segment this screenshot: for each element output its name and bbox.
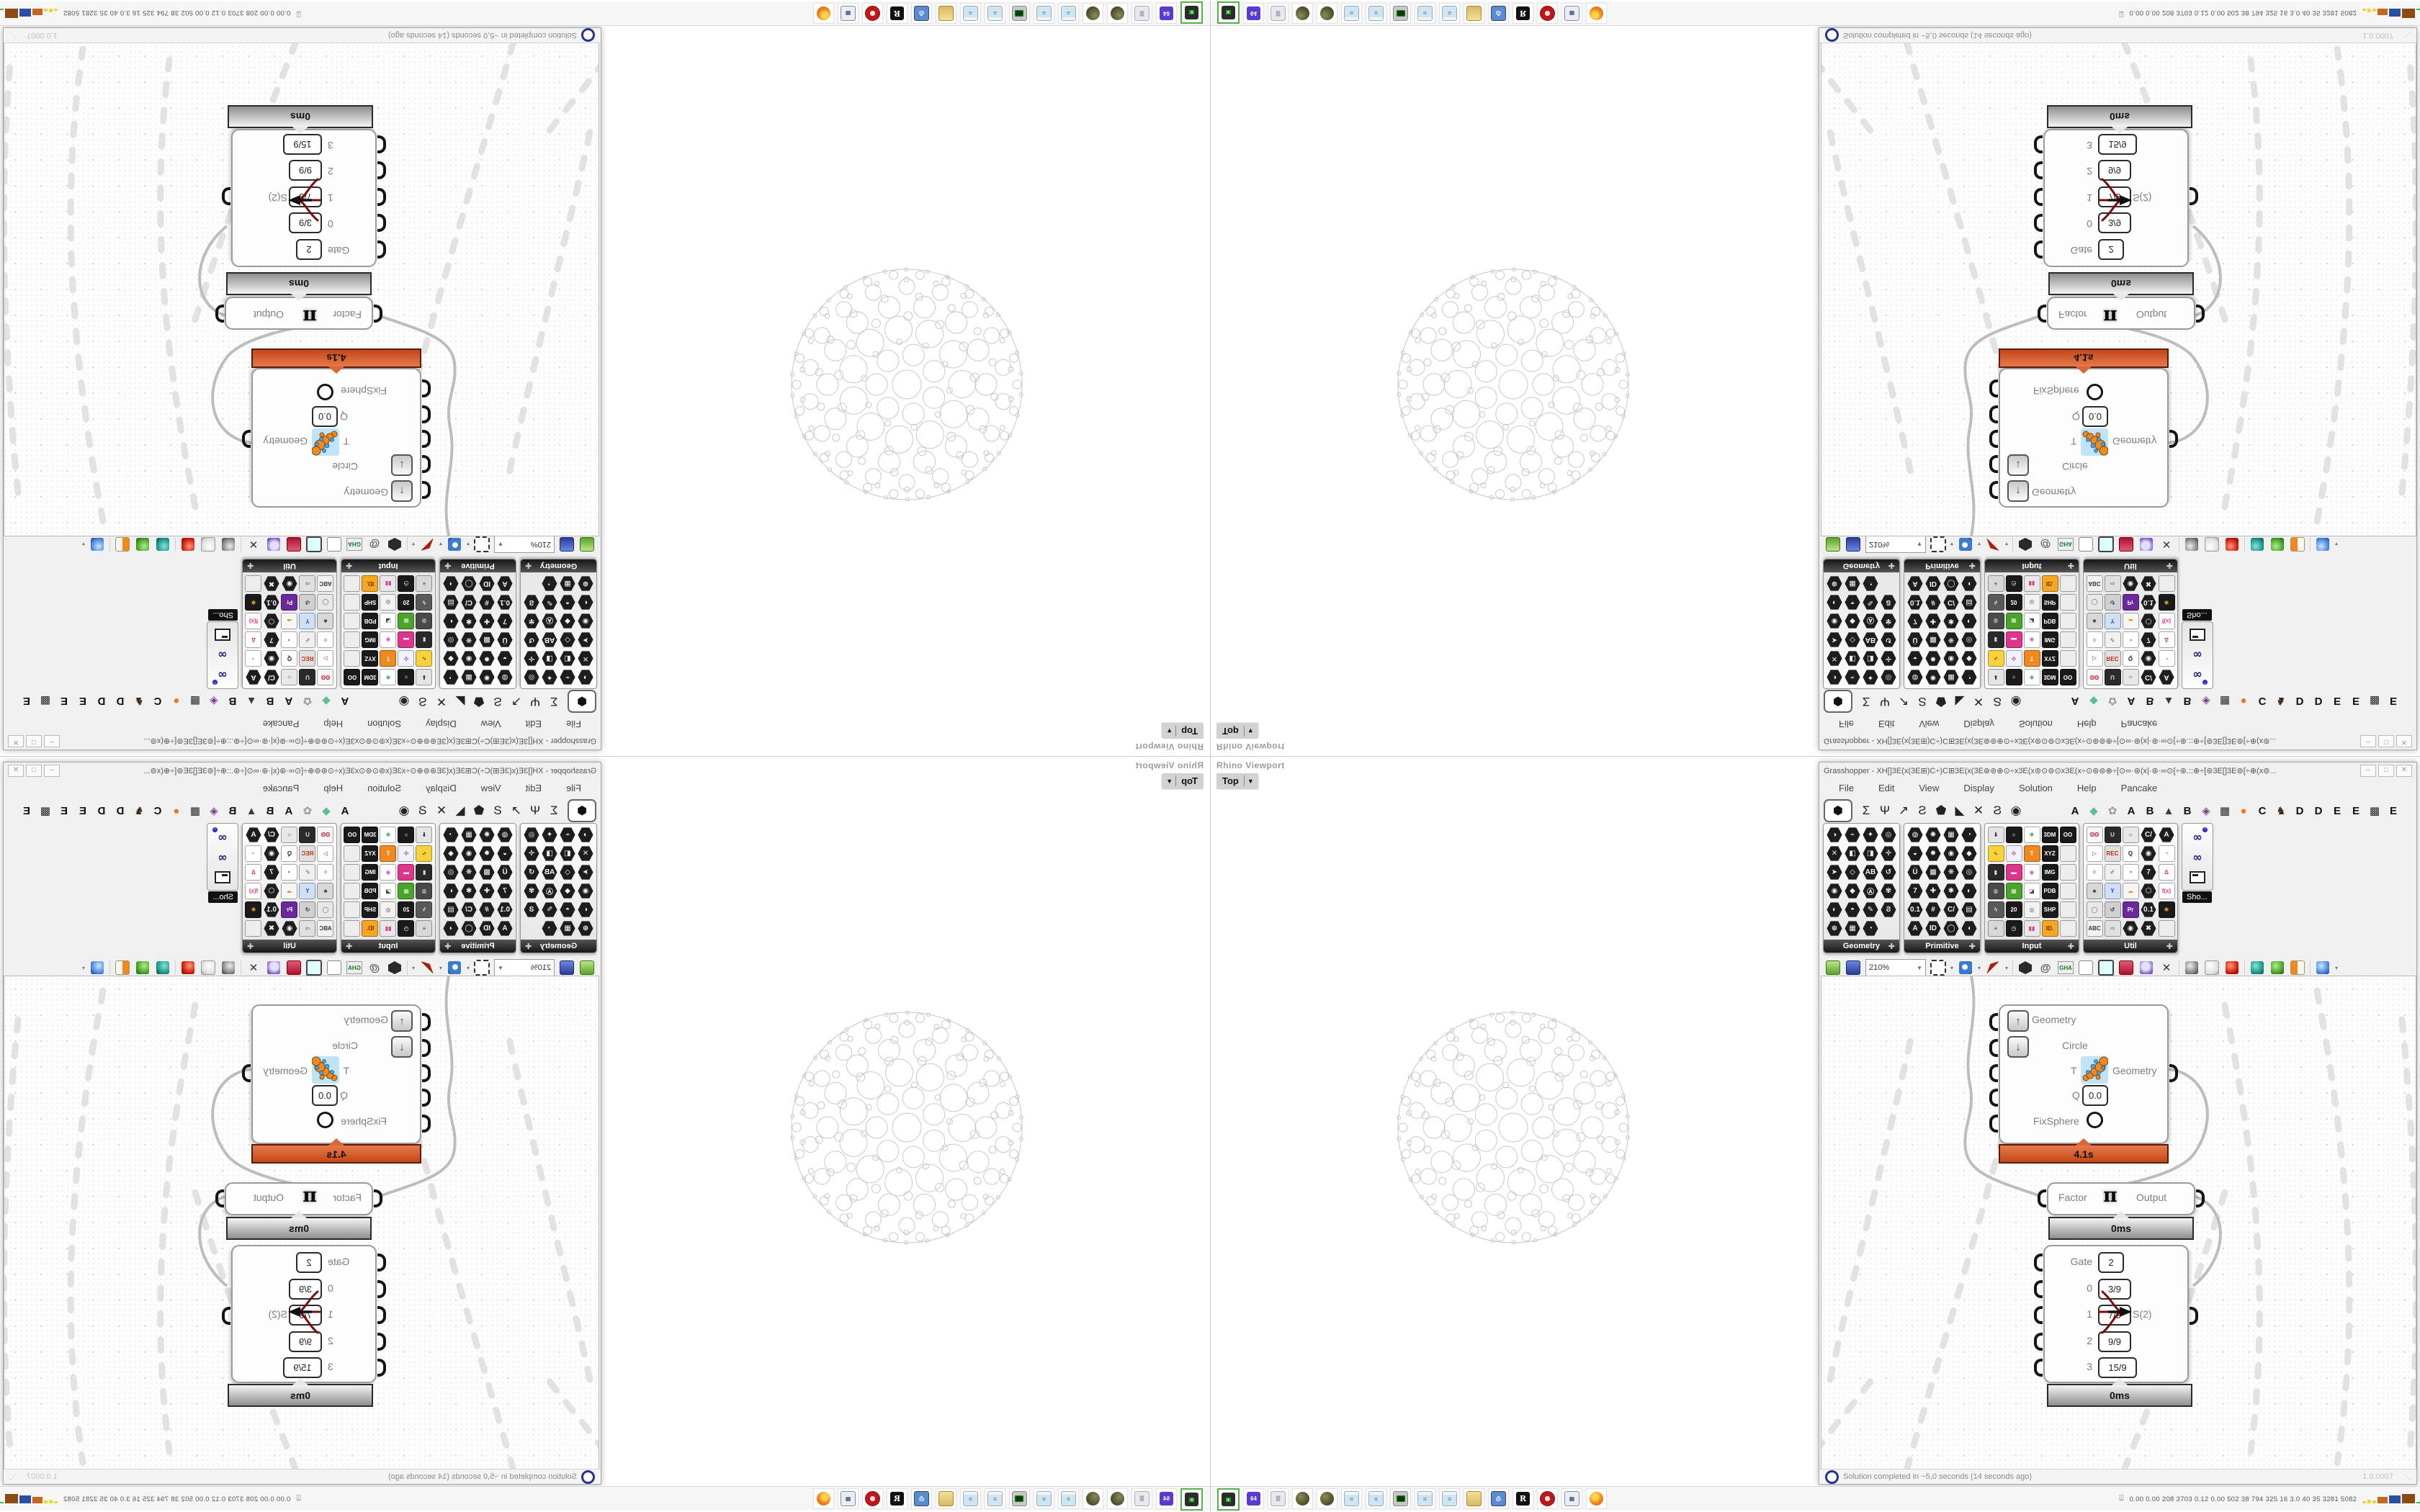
palette-cell[interactable]: ▬ — [398, 863, 415, 881]
palette-cell[interactable]: ✱ — [1942, 612, 1960, 630]
palette-cell[interactable]: ◓ — [559, 901, 576, 919]
palette-cell[interactable]: PDB — [2041, 882, 2058, 900]
palette-cell[interactable]: ▮▮ — [380, 919, 397, 937]
palette-cell[interactable]: ✚ — [1924, 882, 1942, 900]
tab-icon-4[interactable]: ⬟ — [470, 804, 488, 818]
chevron-down-icon[interactable]: ▼ — [498, 541, 503, 548]
tab-icon-5[interactable]: ◣ — [1950, 804, 1969, 818]
palette-cell[interactable]: Ⓐ — [1862, 882, 1879, 900]
palette-cell[interactable]: ✎ — [1862, 593, 1879, 611]
menu-edit[interactable]: Edit — [514, 781, 554, 797]
palette-cell[interactable]: ϟ — [1987, 593, 2004, 611]
open-file-icon[interactable] — [1825, 536, 1841, 552]
tab-icon-1[interactable]: Ψ — [526, 694, 544, 708]
palette-cell[interactable]: REC — [2104, 845, 2121, 863]
preview-off-icon[interactable] — [220, 536, 236, 552]
palette-cell[interactable]: 0.1 — [2140, 901, 2157, 919]
tab-letter-15[interactable]: E — [2347, 805, 2365, 817]
tab-letter-0[interactable]: A — [2066, 696, 2084, 708]
palette-cell[interactable]: 3DM — [2041, 668, 2058, 686]
zoom-level-select[interactable]: 210%▼ — [494, 959, 555, 976]
palette-cell[interactable]: ✣ — [2005, 845, 2022, 863]
idea-bulb-icon[interactable] — [266, 536, 282, 552]
close-button[interactable]: ✕ — [2396, 765, 2412, 777]
palette-cell[interactable]: ✺ — [478, 668, 496, 686]
palette-cell[interactable]: ◎ — [442, 863, 460, 881]
dropdown-caret[interactable]: ▾ — [1978, 965, 1981, 971]
palette-cell[interactable]: ☁ — [281, 882, 298, 900]
palette-cell[interactable]: # — [1924, 593, 1942, 611]
palette-cell[interactable]: ✖ — [2140, 575, 2157, 593]
palette-cell[interactable]: ◓ — [1844, 593, 1861, 611]
preview-eye-icon[interactable] — [1958, 536, 1973, 552]
palette-cell[interactable]: ▦ — [2005, 612, 2022, 630]
tab-letter-11[interactable]: ♞ — [130, 804, 148, 817]
gate-input-connector-3[interactable] — [2034, 1359, 2043, 1377]
save-file-icon[interactable] — [1845, 960, 1861, 976]
palette-cell[interactable]: ⊕ — [1826, 919, 1843, 937]
palette-cell[interactable]: ◔ — [2158, 649, 2175, 667]
palette-cell[interactable]: ✺ — [478, 826, 496, 844]
gate-input-connector-1[interactable] — [2034, 188, 2043, 206]
tab-letter-14[interactable]: E — [73, 805, 92, 817]
expand-icon[interactable]: ✚ — [2068, 942, 2074, 951]
fixsphere-toggle[interactable] — [317, 384, 333, 400]
menu-pancake[interactable]: Pancake — [2109, 781, 2170, 797]
idea-bulb-icon[interactable] — [2138, 960, 2154, 976]
tab-letter-0[interactable]: A — [2066, 805, 2084, 817]
grasshopper-titlebar[interactable]: Grasshopper - XH[]3E(x(3E⊞)C÷)C⊞3E(x(3E⊛… — [1819, 734, 2416, 750]
dropdown-caret[interactable]: ▾ — [439, 965, 442, 971]
input-fixsphere-connector[interactable] — [422, 1115, 431, 1133]
palette-cell[interactable]: PDB — [362, 612, 379, 630]
palette-cell[interactable]: ⬡ — [263, 882, 280, 900]
palette-cell[interactable]: ◉ — [2023, 863, 2040, 881]
chevron-down-icon[interactable]: ▼ — [1247, 728, 1254, 735]
ball-orange-icon[interactable] — [2290, 960, 2305, 976]
tab-letter-15[interactable]: E — [55, 805, 73, 817]
menu-solution[interactable]: Solution — [355, 715, 413, 731]
palette-cell[interactable]: AB — [541, 863, 558, 881]
tab-icon-8[interactable]: ◉ — [2007, 694, 2025, 708]
gate-input-connector-2[interactable] — [377, 162, 386, 180]
palette-cell[interactable]: ✾ — [1880, 612, 1897, 630]
maximize-button[interactable]: □ — [2378, 736, 2394, 748]
palette-cell[interactable]: Ü — [1906, 863, 1924, 881]
taskbar-scroll-doc[interactable]: ≣ — [1131, 1488, 1152, 1509]
sort-down-button[interactable]: ↓ — [391, 1036, 413, 1058]
palette-cell[interactable]: A — [496, 575, 514, 593]
palette-cell[interactable]: Ⓐ — [541, 612, 558, 630]
pin-green-icon[interactable] — [135, 536, 151, 552]
tab-icon-4[interactable]: ⬟ — [470, 694, 488, 708]
palette-cell[interactable]: ▤ — [442, 901, 460, 919]
palette-cell[interactable]: ◖ — [442, 919, 460, 937]
menu-edit[interactable]: Edit — [514, 715, 554, 731]
input-circle-connector[interactable] — [422, 1039, 431, 1057]
palette-cell[interactable]: ✱ — [460, 612, 478, 630]
gh-canvas[interactable]: ↑ Geometry ↓ Circle T — [4, 976, 599, 1471]
dropdown-caret[interactable]: ▾ — [82, 965, 85, 971]
palette-cell[interactable]: C/ — [2140, 668, 2157, 686]
menu-edit[interactable]: Edit — [1866, 715, 1906, 731]
tab-letter-8[interactable]: ▦ — [2215, 695, 2234, 708]
dropdown-caret[interactable]: ▾ — [439, 541, 442, 548]
gift-box-icon[interactable] — [286, 536, 302, 552]
palette-cell[interactable]: AB — [1862, 863, 1879, 881]
palette-cell[interactable]: ϟ — [1987, 901, 2004, 919]
palette-cell[interactable]: ✹ — [1924, 845, 1942, 863]
palette-cell[interactable]: T — [380, 845, 397, 863]
taskbar-firefox[interactable] — [813, 3, 834, 24]
palette-cell[interactable]: ◍ — [496, 826, 514, 844]
palette-cell[interactable]: Q — [281, 845, 298, 863]
tab-icon-7[interactable]: Ϩ — [413, 804, 432, 818]
taskbar-notepad-2[interactable]: ≡ — [1034, 3, 1054, 24]
palette-cell[interactable] — [2059, 612, 2076, 630]
palette-cell[interactable]: Q — [281, 649, 298, 667]
taskbar-notepad-4[interactable]: ≡ — [1439, 1488, 1460, 1509]
palette-cell[interactable]: ✱ — [2158, 901, 2175, 919]
expand-icon[interactable]: ✚ — [525, 562, 532, 571]
taskbar-login-monitor[interactable]: ⎙ — [911, 1488, 932, 1509]
taskbar-red-gear[interactable] — [1537, 3, 1558, 24]
palette-name-primitive[interactable]: Primitive✚ — [1904, 559, 1980, 572]
palette-cell[interactable]: IMG — [2041, 631, 2058, 649]
palette-cell[interactable]: ❖ — [2023, 826, 2040, 844]
taskbar-rhino[interactable]: R — [887, 3, 907, 24]
palette-cell[interactable]: ◯ — [2086, 901, 2103, 919]
tab-letter-13[interactable]: D — [2309, 805, 2328, 817]
palette-cell[interactable]: ID — [478, 919, 496, 937]
taskbar-scroll-doc[interactable]: ≣ — [1131, 3, 1152, 24]
tab-icon-0[interactable]: Σ — [544, 804, 563, 818]
grasshopper-titlebar[interactable]: Grasshopper - XH[]3E(x(3E⊞)C÷)C⊞3E(x(3E⊛… — [4, 734, 601, 750]
palette-cell[interactable]: A — [1906, 919, 1924, 937]
palette-cell[interactable]: ✐ — [299, 631, 316, 649]
gate-input-connector-gate[interactable] — [2034, 1254, 2043, 1272]
palette-cell[interactable]: ◉ — [1826, 612, 1843, 630]
palette-cell[interactable]: ≡ — [416, 575, 433, 593]
tab-letter-2[interactable]: ✿ — [2103, 695, 2122, 708]
palette-cell[interactable]: ◎ — [523, 668, 540, 686]
palette-cell[interactable] — [344, 612, 361, 630]
palette-cell[interactable]: ◍ — [416, 612, 433, 630]
gate-row-value-2[interactable]: 9/9 — [2098, 1331, 2131, 1352]
tab-letter-9[interactable]: ● — [2234, 805, 2253, 817]
factor-component[interactable]: Factor π Output — [2047, 297, 2195, 330]
palette-cell[interactable]: Ϩ — [523, 593, 540, 611]
taskbar-notepad-3[interactable]: ≡ — [985, 1488, 1005, 1509]
gha-assembly-icon[interactable]: GHA — [346, 960, 362, 976]
palette-cell[interactable] — [344, 649, 361, 667]
palette-cell[interactable]: OO — [2059, 668, 2076, 686]
input-t-connector[interactable] — [422, 1064, 431, 1082]
palette-cell[interactable]: ID. — [2041, 919, 2058, 937]
tab-letter-12[interactable]: D — [111, 696, 130, 708]
palette-cell[interactable]: ✖ — [263, 575, 280, 593]
menu-help[interactable]: Help — [311, 715, 355, 731]
expand-icon[interactable]: ✚ — [346, 942, 352, 951]
taskbar-floppy-64[interactable]: 64 — [1243, 3, 1264, 24]
preview-shaded-icon[interactable] — [180, 960, 196, 976]
tab-letter-2[interactable]: ✿ — [298, 804, 317, 817]
input-q-connector[interactable] — [1989, 405, 1998, 423]
palette-cell[interactable]: A — [245, 668, 262, 686]
sketch-quill-icon[interactable] — [1985, 536, 2001, 552]
fixsphere-component[interactable]: ↑ Geometry ↓ Circle T — [251, 368, 421, 508]
palette-cell[interactable]: ◆ — [1844, 612, 1861, 630]
palette-cell[interactable]: 7 — [263, 863, 280, 881]
palette-cell[interactable]: ■ — [398, 668, 415, 686]
palette-cell[interactable]: U — [299, 826, 316, 844]
palette-cell[interactable]: ⬡ — [2140, 882, 2157, 900]
gate-row-value-2[interactable]: 9/9 — [2098, 161, 2131, 181]
open-file-icon[interactable] — [579, 960, 595, 976]
palette-cell[interactable]: ▬ — [2005, 863, 2022, 881]
palette-cell[interactable]: ◧ — [1844, 845, 1861, 863]
palette-cell[interactable]: ◆ — [442, 845, 460, 863]
palette-cell[interactable]: ◔ — [442, 668, 460, 686]
palette-cell[interactable] — [1880, 575, 1897, 593]
palette-cell[interactable]: ⚛ — [2086, 863, 2103, 881]
ball-blue-icon[interactable] — [89, 960, 105, 976]
palette-cell[interactable]: 20 — [2005, 901, 2022, 919]
palette-cell[interactable]: A — [496, 919, 514, 937]
palette-cell[interactable]: ≡ — [1987, 575, 2004, 593]
palette-cell[interactable]: ⚛ — [317, 863, 334, 881]
tab-icon-8[interactable]: ◉ — [395, 694, 413, 708]
palette-cell[interactable]: ❋ — [460, 631, 478, 649]
save-file-icon[interactable] — [1845, 536, 1861, 552]
palette-cell[interactable] — [344, 575, 361, 593]
palette-cell[interactable]: ◉ — [380, 863, 397, 881]
palette-name-primitive[interactable]: Primitive✚ — [440, 559, 516, 572]
palette-cell[interactable]: ▦ — [559, 575, 576, 593]
palette-cell[interactable]: ◔ — [281, 631, 298, 649]
palette-cell[interactable]: A — [245, 826, 262, 844]
maximize-button[interactable]: □ — [26, 736, 42, 748]
palette-cell[interactable]: C/ — [263, 826, 280, 844]
palette-cell[interactable]: ◍ — [1987, 882, 2004, 900]
taskbar-camo-ball-2[interactable] — [1083, 1488, 1103, 1509]
tab-icon-2[interactable]: ↗ — [507, 694, 526, 708]
tab-icon-0[interactable]: Σ — [544, 694, 563, 708]
dropdown-caret[interactable]: ▾ — [2005, 541, 2008, 548]
menu-help[interactable]: Help — [2065, 781, 2109, 797]
palette-cell[interactable]: ∿ — [1987, 845, 2004, 863]
tab-letter-11[interactable]: ♞ — [2272, 695, 2290, 708]
palette-cell[interactable]: ◑ — [577, 668, 594, 686]
taskbar-calculator[interactable]: ▦ — [838, 3, 859, 24]
maximize-button[interactable]: □ — [2378, 765, 2394, 777]
expand-icon[interactable]: ✚ — [346, 562, 352, 571]
palette-cell[interactable]: ❖ — [380, 668, 397, 686]
fixsphere-toggle[interactable] — [2087, 1112, 2103, 1128]
preview-off-icon[interactable] — [2184, 960, 2200, 976]
tab-letter-10[interactable]: C — [2253, 696, 2272, 708]
palette-cell[interactable]: ◧ — [559, 845, 576, 863]
factor-input-connector[interactable] — [374, 1189, 382, 1207]
palette-cell[interactable]: ◆ — [1960, 649, 1978, 667]
palette-cell[interactable]: ◒ — [496, 845, 514, 863]
taskbar-login-monitor[interactable]: ⎙ — [1488, 3, 1509, 24]
chevron-down-icon[interactable]: ▼ — [1917, 541, 1922, 548]
palette-name-geometry[interactable]: Geometry✚ — [521, 559, 596, 572]
grasshopper-titlebar[interactable]: Grasshopper - XH[]3E(x(3E⊞)C÷)C⊞3E(x(3E⊛… — [1819, 762, 2416, 778]
input-circle-connector[interactable] — [422, 455, 431, 473]
palette-cell[interactable]: ◎ — [523, 826, 540, 844]
palette-cell[interactable]: ◑ — [1826, 668, 1843, 686]
preview-eye-icon[interactable] — [447, 536, 462, 552]
gate-row-value-gate[interactable]: 2 — [296, 239, 322, 260]
menu-pancake[interactable]: Pancake — [251, 781, 312, 797]
find-component-icon[interactable] — [306, 536, 322, 552]
palette-cell[interactable]: SHP — [362, 901, 379, 919]
tab-icon-6[interactable]: ✕ — [1969, 804, 1988, 818]
menu-solution[interactable]: Solution — [2007, 715, 2065, 731]
gift-box-icon[interactable] — [2118, 536, 2134, 552]
palette-cell[interactable]: ⬇ — [1987, 826, 2004, 844]
gh-canvas[interactable]: ↑ Geometry ↓ Circle T — [1821, 41, 2416, 536]
palette-cell[interactable]: ◍ — [496, 668, 514, 686]
input-geometry-connector[interactable] — [422, 1013, 431, 1031]
palette-cell[interactable]: ✐ — [299, 863, 316, 881]
palette-cell[interactable]: T — [2023, 845, 2040, 863]
chevron-down-icon[interactable]: ▼ — [1247, 778, 1254, 785]
tab-icon-6[interactable]: ✕ — [1969, 694, 1988, 708]
input-geometry-connector[interactable] — [1989, 1013, 1998, 1031]
doc-search-icon[interactable] — [2078, 960, 2094, 976]
palette-cell[interactable]: ʘʘ — [2086, 668, 2103, 686]
palette-cell[interactable]: ◧ — [559, 649, 576, 667]
stream-gate-component[interactable]: S(2) Gate203/917/929/9315/9 — [2043, 1245, 2189, 1383]
gate-output-connector[interactable] — [222, 1307, 230, 1325]
zoom-level-select[interactable]: 210%▼ — [1865, 536, 1926, 553]
ribbon-cross-icon[interactable]: ✕ — [246, 536, 261, 552]
palette-name-util[interactable]: Util✚ — [243, 940, 336, 953]
palette-cell[interactable]: ⌁ — [1844, 668, 1861, 686]
palette-cell[interactable]: ⌁ — [1844, 826, 1861, 844]
tab-letter-14[interactable]: E — [73, 696, 92, 708]
resize-grip[interactable]: ⋱ — [2403, 1473, 2411, 1481]
palette-cell[interactable]: ✣ — [398, 649, 415, 667]
factor-input-connector[interactable] — [2038, 305, 2046, 323]
taskbar-notepad-2[interactable]: ≡ — [1366, 3, 1386, 24]
palette-cell[interactable]: Ⓐ — [541, 882, 558, 900]
palette-cell[interactable]: 0.1 — [1906, 901, 1924, 919]
palette-cell[interactable]: ✦ — [1862, 668, 1879, 686]
palette-cell[interactable]: ✚ — [478, 612, 496, 630]
menu-file[interactable]: File — [1827, 715, 1866, 731]
palette-cell[interactable]: ✦ — [541, 668, 558, 686]
palette-cell[interactable]: ϟ — [416, 901, 433, 919]
palette-cell[interactable]: REC — [2104, 649, 2121, 667]
palette-cell[interactable] — [2059, 593, 2076, 611]
tab-letter-16[interactable]: ▩ — [2365, 804, 2384, 817]
palette-cell[interactable]: ✚ — [478, 882, 496, 900]
palette-cell[interactable]: ✐ — [2104, 863, 2121, 881]
goggles-info-icon[interactable]: ∞i — [210, 665, 235, 685]
open-file-icon[interactable] — [1825, 960, 1841, 976]
gh-canvas[interactable]: ↑ Geometry ↓ Circle T — [1821, 976, 2416, 1471]
menu-display[interactable]: Display — [413, 715, 469, 731]
tab-letter-6[interactable]: B — [2178, 696, 2197, 708]
palette-cell[interactable]: ◎ — [380, 593, 397, 611]
tab-icon-8[interactable]: ◉ — [2007, 804, 2025, 818]
palette-cell[interactable]: ▮▮ — [2023, 575, 2040, 593]
q-value-box[interactable]: 0.0 — [312, 406, 338, 427]
doc-search-icon[interactable] — [2078, 536, 2094, 552]
expand-icon[interactable]: ✚ — [2166, 942, 2173, 951]
palette-cell[interactable]: ❋ — [460, 863, 478, 881]
minimize-button[interactable]: – — [2360, 736, 2376, 748]
gate-input-connector-3[interactable] — [2034, 135, 2043, 153]
gate-input-connector-gate[interactable] — [377, 240, 386, 258]
projector-screen-icon[interactable] — [2185, 867, 2210, 887]
palette-cell[interactable]: ⊕ — [577, 575, 594, 593]
palette-cell[interactable]: ◪ — [380, 882, 397, 900]
preview-eye-icon[interactable] — [447, 960, 462, 976]
palette-cell[interactable]: 7 — [496, 882, 514, 900]
palette-cell[interactable]: ◒ — [496, 649, 514, 667]
ball-orange-icon[interactable] — [2290, 536, 2305, 552]
palette-cell[interactable]: 20 — [398, 593, 415, 611]
taskbar-folder[interactable] — [936, 3, 956, 24]
palette-cell[interactable]: ◖ — [1960, 575, 1978, 593]
sort-down-button[interactable]: ↓ — [391, 454, 413, 476]
tab-letter-13[interactable]: D — [92, 805, 111, 817]
gate-row-value-3[interactable]: 15/9 — [2098, 1357, 2137, 1378]
fixsphere-component[interactable]: ↑ Geometry ↓ Circle T — [1999, 1004, 2169, 1144]
palette-cell[interactable]: ↺ — [299, 593, 316, 611]
palette-cell[interactable]: ◉ — [263, 649, 280, 667]
doc-search-icon[interactable] — [326, 536, 342, 552]
tab-letter-0[interactable]: A — [336, 805, 354, 817]
palette-cell[interactable]: ➤ — [1826, 863, 1843, 881]
palette-cell[interactable]: ◯ — [460, 575, 478, 593]
fixsphere-component[interactable]: ↑ Geometry ↓ Circle T — [1999, 368, 2169, 508]
pin-teal-icon[interactable] — [2249, 960, 2265, 976]
grasshopper-titlebar[interactable]: Grasshopper - XH[]3E(x(3E⊞)C÷)C⊞3E(x(3E⊛… — [4, 762, 601, 778]
palette-cell[interactable]: ◔ — [442, 826, 460, 844]
palette-cell[interactable]: ◔ — [541, 575, 558, 593]
idea-bulb-icon[interactable] — [2138, 536, 2154, 552]
tab-letter-4[interactable]: B — [2141, 805, 2159, 817]
palette-cell[interactable]: ◐ — [1826, 593, 1843, 611]
palette-cell[interactable]: ➩ — [281, 668, 298, 686]
taskbar-camo-ball-1[interactable] — [1292, 1488, 1313, 1509]
palette-cell[interactable] — [2158, 575, 2175, 593]
palette-cell[interactable]: ◪ — [380, 612, 397, 630]
minimize-button[interactable]: – — [44, 736, 60, 748]
menu-pancake[interactable]: Pancake — [2109, 715, 2170, 731]
palette-cell[interactable]: ◆ — [1960, 845, 1978, 863]
tab-icon-7[interactable]: Ϩ — [1988, 694, 2007, 708]
chevron-down-icon[interactable]: ▼ — [498, 965, 503, 971]
tab-letter-17[interactable]: E — [17, 696, 36, 708]
palette-cell[interactable]: ✎ — [541, 901, 558, 919]
palette-cell[interactable]: ◔ — [1960, 826, 1978, 844]
tab-icon-1[interactable]: Ψ — [1875, 694, 1894, 708]
ball-blue-icon[interactable] — [2315, 536, 2331, 552]
expand-icon[interactable]: ✚ — [444, 562, 451, 571]
minimize-button[interactable]: – — [44, 765, 60, 777]
goggles-curve-icon[interactable]: ∞ — [210, 847, 235, 867]
palette-cell[interactable]: ◯ — [1942, 919, 1960, 937]
palette-cell[interactable]: Y — [2104, 612, 2121, 630]
palette-cell[interactable]: ▤ — [442, 593, 460, 611]
